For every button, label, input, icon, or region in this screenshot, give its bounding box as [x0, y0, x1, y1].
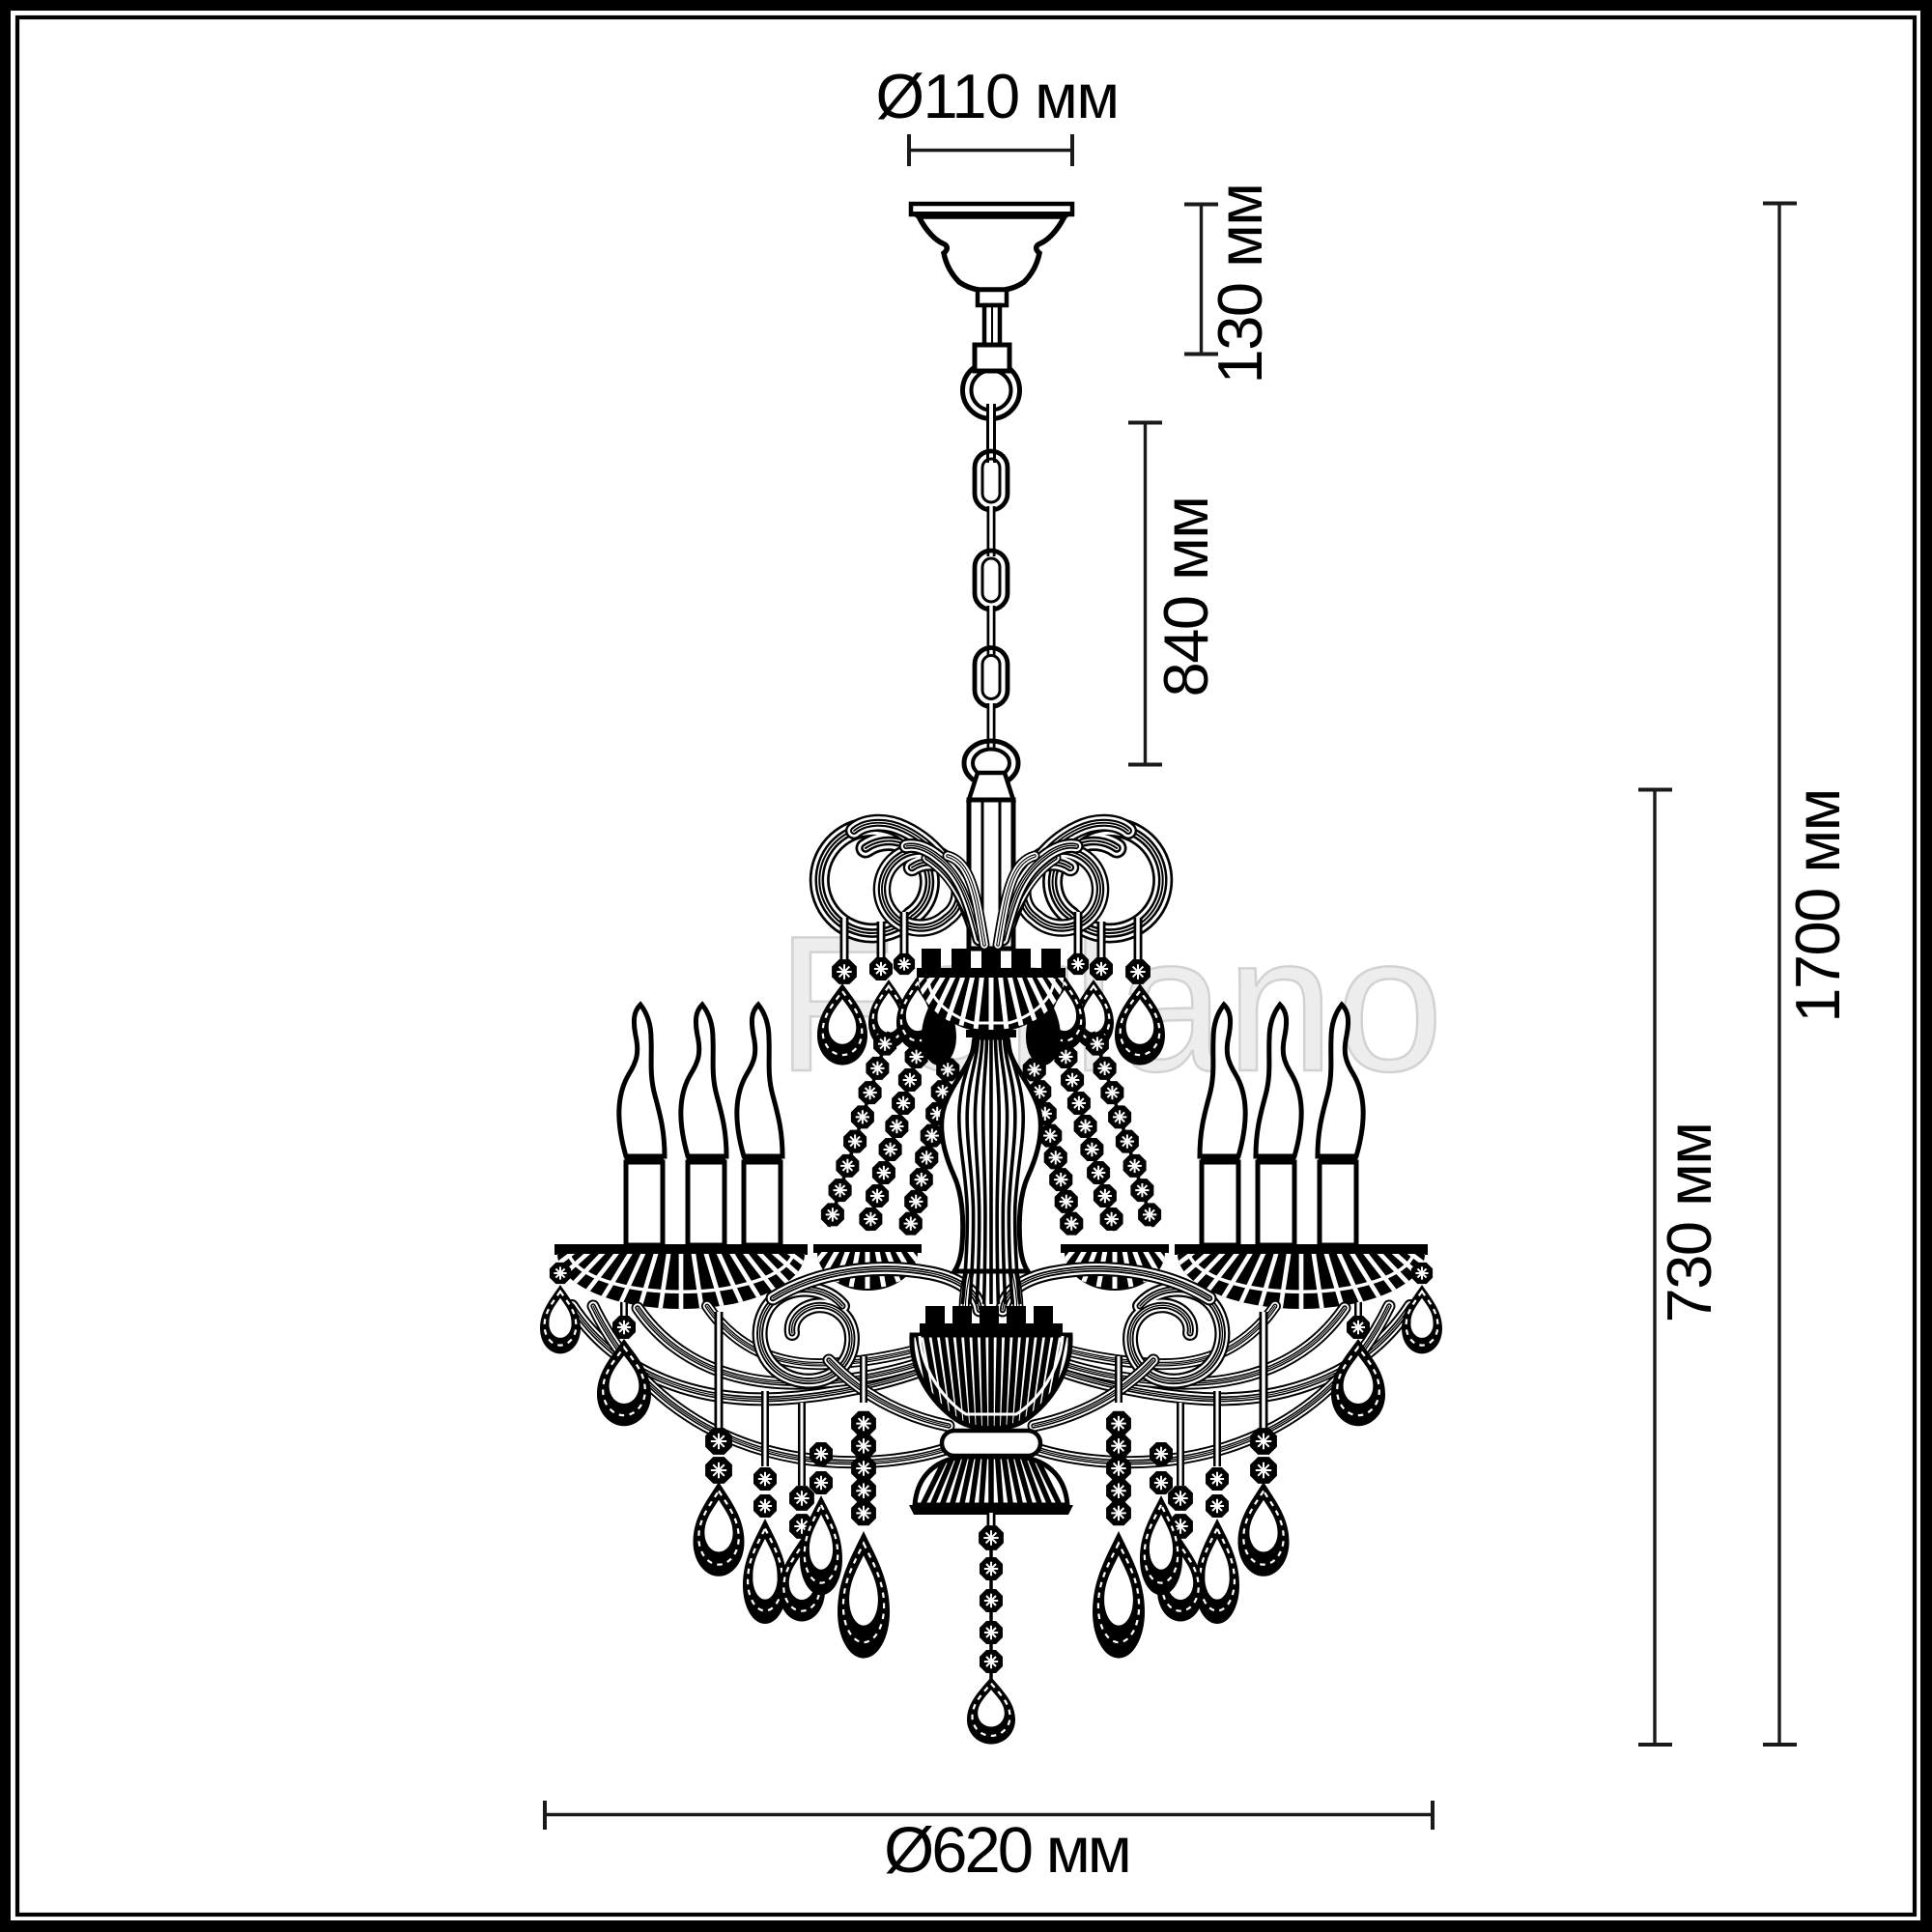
svg-text:Ø620 мм: Ø620 мм [884, 1814, 1129, 1887]
svg-text:Ø110 мм: Ø110 мм [875, 61, 1118, 131]
svg-text:840 мм: 840 мм [1151, 497, 1221, 697]
svg-text:1700 мм: 1700 мм [1782, 789, 1853, 1023]
svg-text:130 мм: 130 мм [1205, 185, 1275, 384]
svg-text:730 мм: 730 мм [1654, 1123, 1724, 1323]
